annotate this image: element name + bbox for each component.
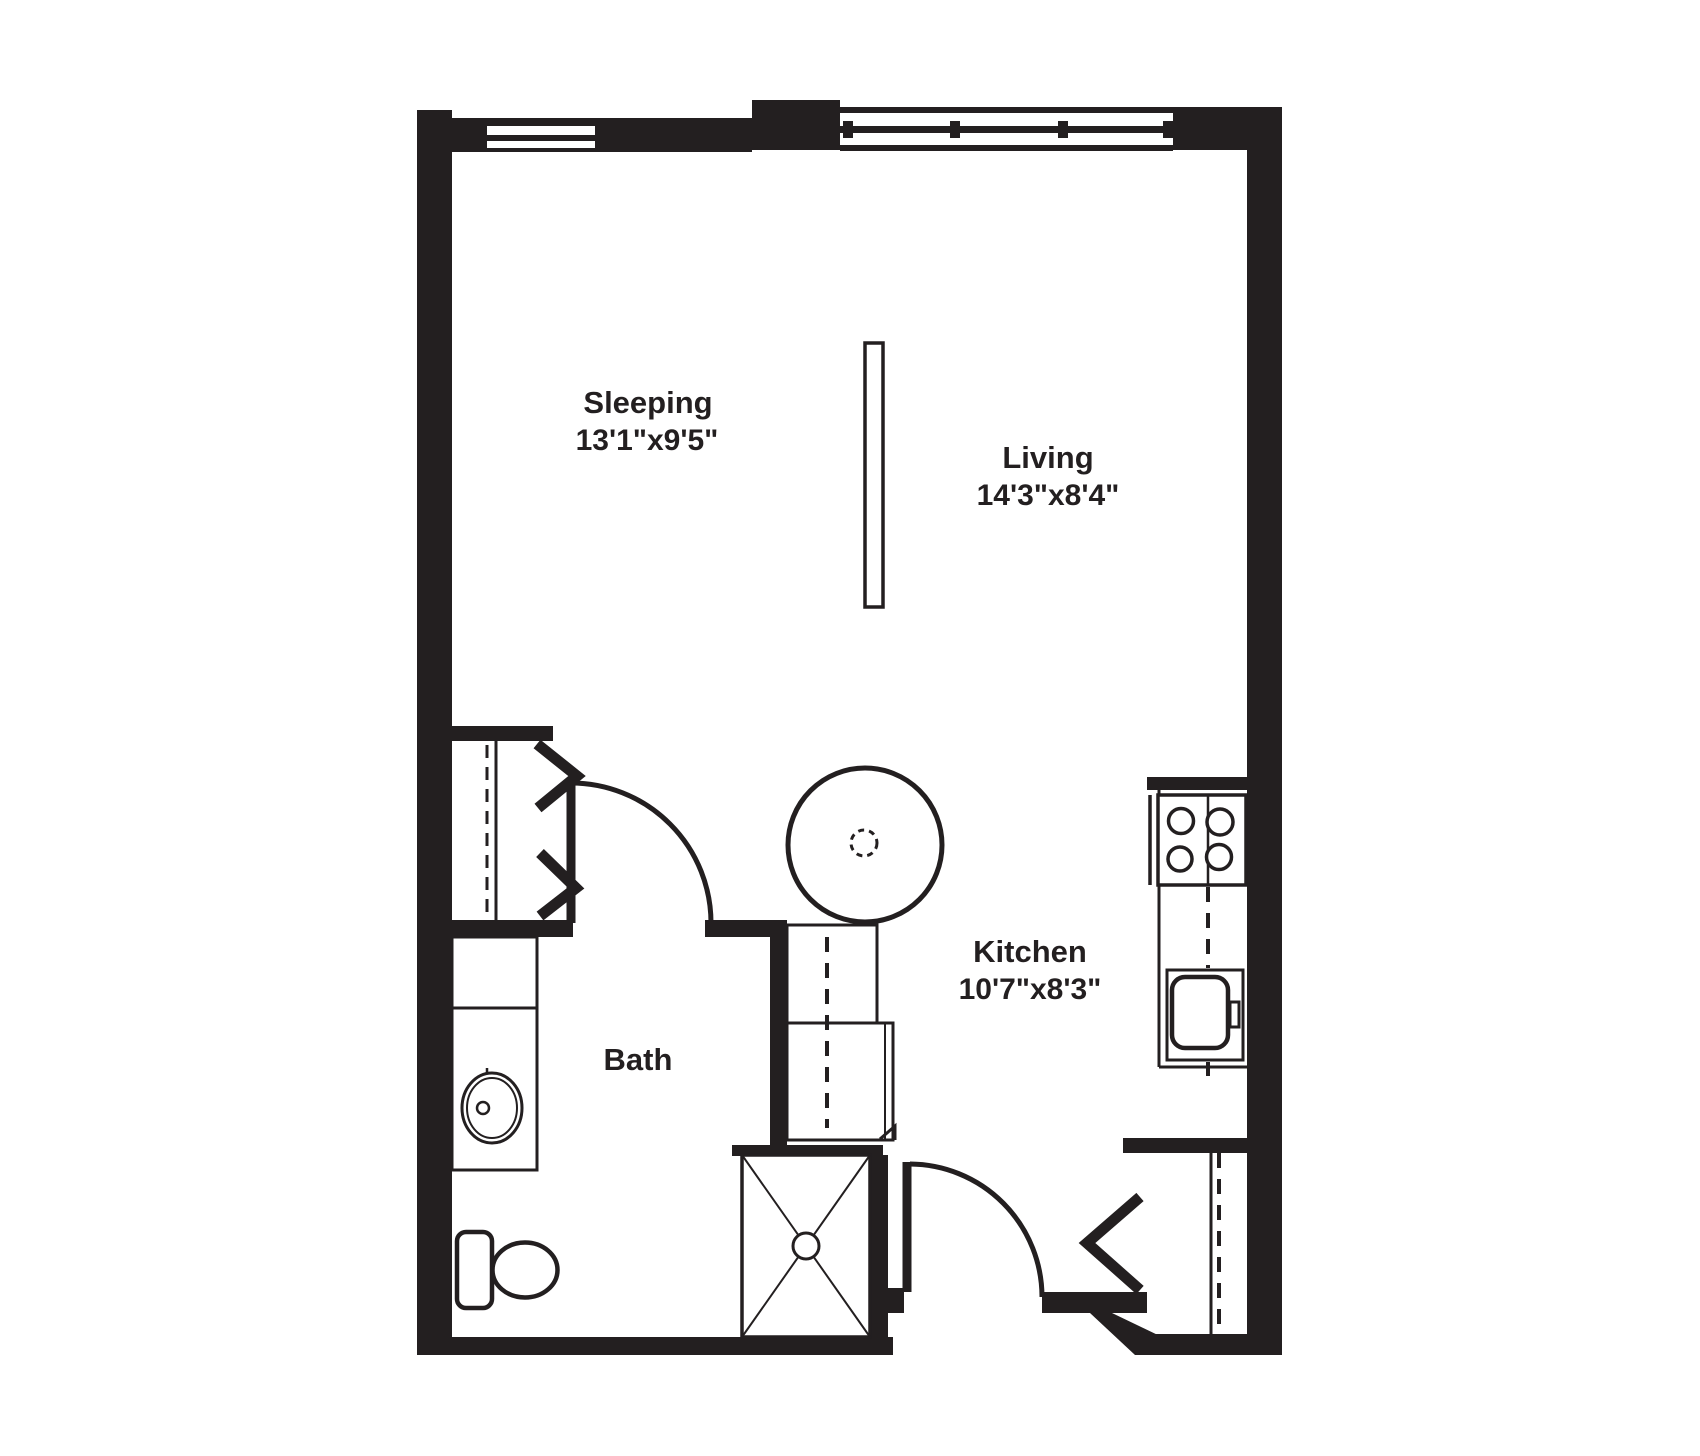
window-mullion-tick <box>1163 121 1173 138</box>
kitchen-sink <box>1172 977 1228 1048</box>
living-label: Living <box>1002 440 1093 475</box>
entry-door-arc <box>910 1164 1042 1297</box>
floor-plan-svg: Sleeping 13'1"x9'5" Living 14'3"x8'4" Ki… <box>0 0 1700 1456</box>
wall-closet-bottom <box>452 920 573 937</box>
wall-right <box>1247 107 1282 1355</box>
shower-stall <box>742 1155 870 1337</box>
window-mullion-tick <box>843 121 853 138</box>
kitchen-dimensions: 10'7"x8'3" <box>959 973 1102 1006</box>
stove-burner <box>1207 845 1232 870</box>
bath-door-arc <box>571 783 711 923</box>
wall-bottom-right <box>1145 1334 1282 1355</box>
wall-closet-top <box>452 726 553 741</box>
sleeping-closet <box>487 741 577 920</box>
wall-entry-stub-right <box>1042 1292 1147 1313</box>
toilet-bowl <box>493 1243 558 1298</box>
kitchen-counter-run <box>1150 790 1247 1082</box>
window-right-outer-line <box>840 107 1173 113</box>
shower-drain <box>793 1233 819 1259</box>
entry-closet-door-chevron <box>1087 1197 1140 1290</box>
bath-fixtures <box>452 937 558 1308</box>
sleeping-label: Sleeping <box>583 385 712 420</box>
stove-burner <box>1169 809 1194 834</box>
water-heater <box>788 768 942 922</box>
sleeping-dimensions: 13'1"x9'5" <box>576 424 719 457</box>
wall-bottom-bath <box>417 1337 893 1355</box>
wall-kitchen-top-stub <box>1147 777 1247 790</box>
window-top-right <box>840 107 1173 151</box>
wall-shower-right <box>870 1155 888 1337</box>
stove-burner <box>1207 809 1233 835</box>
mech-cabinet-upper <box>787 925 877 1023</box>
stove-burner <box>1168 847 1192 871</box>
mech-cabinet-lower <box>787 1023 893 1140</box>
room-divider-partition <box>865 343 883 607</box>
wall-kitchen-bottom-stub <box>1123 1138 1247 1153</box>
stove-four-burners <box>1158 795 1246 885</box>
living-dimensions: 14'3"x8'4" <box>977 479 1120 512</box>
window-left-midline <box>487 135 595 141</box>
window-top-left <box>487 126 595 148</box>
window-mullion-tick <box>950 121 960 138</box>
window-right-midline <box>840 126 1173 133</box>
bath-label: Bath <box>604 1042 673 1077</box>
bath-swing-door <box>571 783 711 923</box>
window-right-inner-line <box>840 145 1173 151</box>
wall-mech-vertical <box>770 920 787 1155</box>
vanity-sink-outer <box>462 1073 522 1143</box>
window-mullion-tick <box>1058 121 1068 138</box>
water-heater-area <box>787 768 942 1140</box>
wall-top-column-bumpout <box>752 100 840 150</box>
floor-plan: Sleeping 13'1"x9'5" Living 14'3"x8'4" Ki… <box>0 0 1700 1456</box>
kitchen-sink-faucet <box>1230 1002 1239 1027</box>
kitchen-label: Kitchen <box>973 934 1087 969</box>
toilet-tank <box>457 1232 492 1308</box>
vanity-sink-drain <box>477 1102 489 1114</box>
wall-left <box>417 110 452 1355</box>
